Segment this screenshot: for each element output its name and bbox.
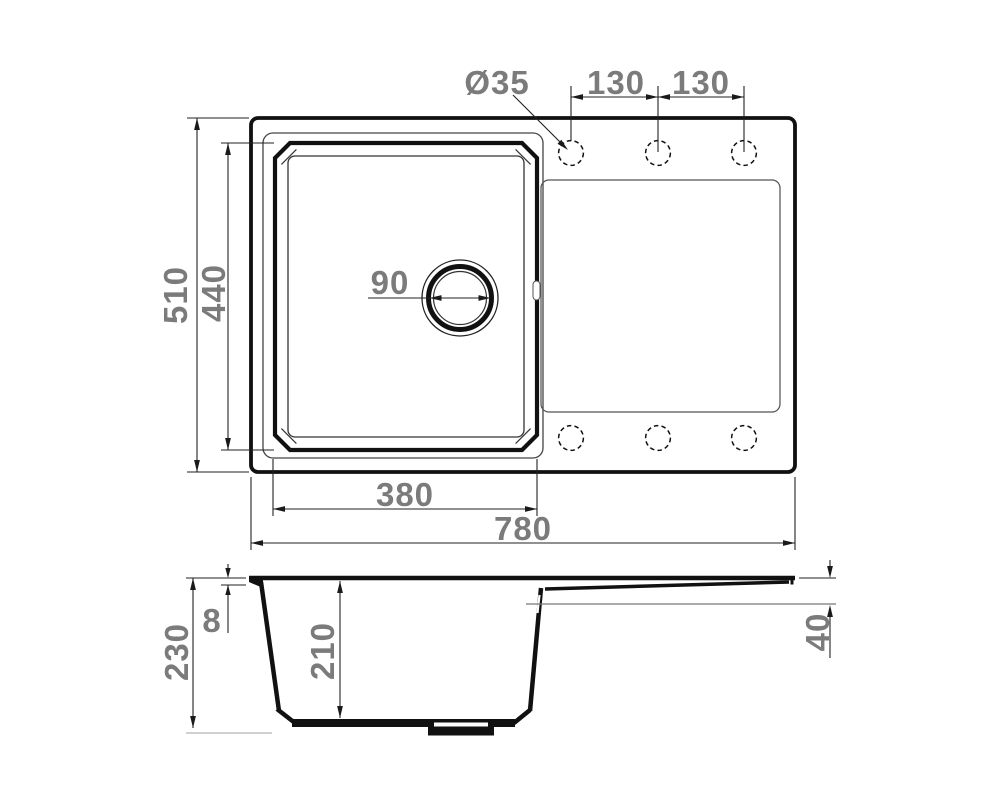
overflow-notch: [533, 281, 540, 300]
dim-label-210: 210: [304, 622, 341, 680]
background: [0, 0, 1005, 807]
drawing-canvas: 130 130 Ø35 510 440 90: [0, 0, 1005, 807]
dim-label-230: 230: [158, 623, 195, 681]
dim-label-130-b: 130: [672, 64, 730, 101]
dim-label-d35: Ø35: [464, 64, 529, 101]
sink-dimension-drawing: 130 130 Ø35 510 440 90: [0, 0, 1005, 807]
dim-label-380: 380: [376, 476, 434, 513]
dim-label-440: 440: [195, 264, 232, 322]
dim-label-8: 8: [202, 602, 221, 639]
dim-label-510: 510: [157, 266, 194, 324]
dim-label-130-a: 130: [587, 64, 645, 101]
dim-label-780: 780: [494, 510, 552, 547]
dim-label-90: 90: [371, 264, 410, 301]
dim-label-40: 40: [799, 613, 836, 652]
